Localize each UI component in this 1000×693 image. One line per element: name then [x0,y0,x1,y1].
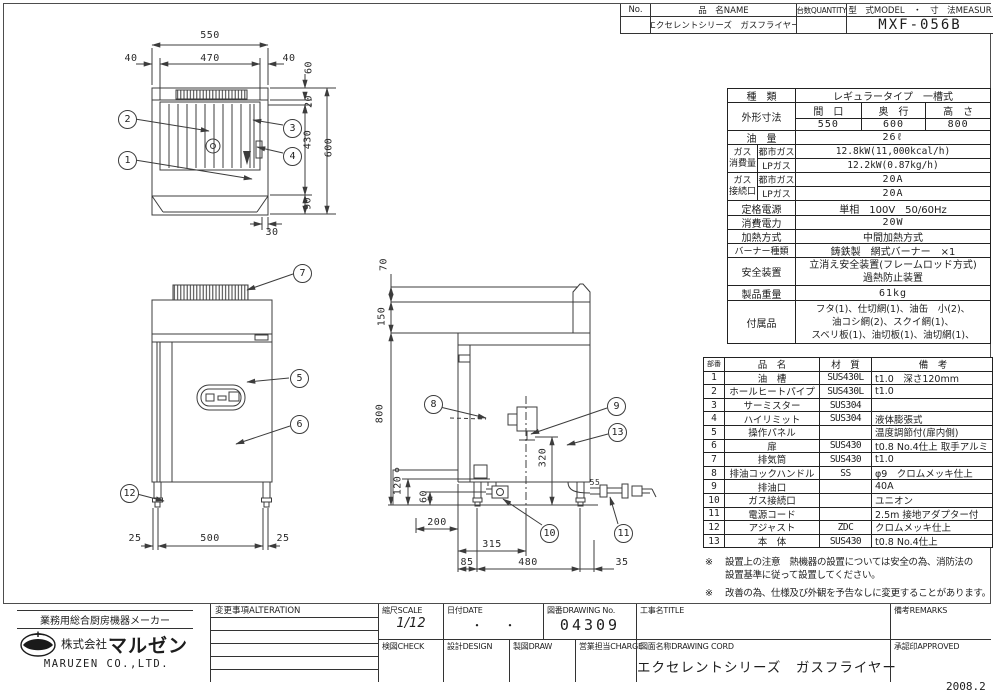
spec-label: 外形寸法 [728,103,796,130]
balloon-13: 13 [608,423,627,442]
check-label: 検図CHECK [382,641,424,652]
balloon-10: 10 [540,524,559,543]
conn-values: 20A 20A [796,173,990,200]
parts-cell: クロムメッキ仕上 [871,520,992,534]
city-gas-label: 都市ガス [758,173,795,187]
engineering-drawing-sheet: { "page": { "date_code": "2008.2" }, "he… [0,0,1000,692]
dim-label: 25 [126,533,144,544]
parts-table: 部番 品 名 材 質 備 考 1油 槽SUS430Lt1.0 深さ120mm2ホ… [703,357,993,548]
alteration-row-line [211,643,378,644]
approved-cell: 承認印APPROVED [890,640,991,682]
name-header: 品 名NAME [651,4,797,17]
parts-cell: 電源コード [724,507,819,521]
depth-label: 奥 行 [861,103,926,119]
charge-cell: 営業担当CHARGE [575,640,636,682]
spec-value: 20W [796,216,990,229]
parts-cell: アジャスト [724,520,819,534]
gas-values: 12.8kW(11,000kcal/h) 12.2kW(0.87kg/h) [796,145,990,172]
balloon-5: 5 [290,369,309,388]
dim-label: 85 [457,557,477,568]
lp-gas-label: LPガス [758,187,795,200]
balloon-7: 7 [293,264,312,283]
parts-cell: t1.0 [871,384,992,398]
dim-label: 800 [375,402,386,426]
scale-cell: 縮尺SCALE 1/12 [378,604,443,640]
spec-label: バーナー種類 [728,244,796,257]
alteration-cell: 変更事項ALTERATION [210,604,378,682]
parts-cell: 温度調節付(扉内側) [871,425,992,439]
dim-label: 55 [587,478,603,487]
drawing-name-cell: 図面名称DRAWING CORD エクセレントシリーズ ガスフライヤー [636,640,890,682]
spec-value: 中間加熱方式 [796,230,990,243]
dim-label: 470 [196,53,224,64]
dim-label: 320 [538,446,549,470]
no-header: No. [621,4,651,17]
lp-gas-value: 12.2kW(0.87kg/h) [796,159,990,172]
spec-label: 定格電源 [728,201,796,215]
spec-value: 鋳鉄製 網式バーナー ×1 [796,244,990,257]
balloon-9: 9 [607,397,626,416]
dim-label: 120 [393,474,404,498]
dim-label: 40 [122,53,140,64]
balloon-6: 6 [290,415,309,434]
parts-cell: t1.0 [871,452,992,466]
scale-label: 縮尺SCALE [382,605,422,616]
balloon-8: 8 [424,395,443,414]
note-mark: ※ [705,587,725,600]
conn-city-value: 20A [796,173,990,187]
note-1-line2: 設置基準に従って設置してください。 [725,569,995,582]
revision-date: 2008.2 [946,680,986,693]
outer-dim-grid: 間 口 奥 行 高 さ 550 600 800 [796,103,990,130]
safety-line2: 過熱防止装置 [863,272,923,285]
spec-label: 種 類 [728,89,796,102]
parts-cell: 2.5m 接地アダプター付 [871,507,992,521]
spec-row-weight: 製品重量 61kg [728,286,990,301]
parts-cell: 1 [704,371,724,385]
balloon-3: 3 [283,119,302,138]
parts-header-material: 材 質 [819,358,871,371]
no-value [621,17,651,33]
parts-cell: 12 [704,520,724,534]
dim-label: 500 [196,533,224,544]
draw-label: 製図DRAW [513,641,552,652]
draw-cell: 製図DRAW [509,640,575,682]
remarks-cell: 備考REMARKS [890,604,991,640]
balloon-4: 4 [283,147,302,166]
parts-cell: ハイリミット [724,411,819,425]
spec-row-heating: 加熱方式 中間加熱方式 [728,230,990,244]
parts-cell: 8 [704,466,724,480]
parts-cell: サーミスター [724,398,819,412]
spec-row-burner: バーナー種類 鋳鉄製 網式バーナー ×1 [728,244,990,258]
spec-row-kind: 種 類 レギュラータイプ 一槽式 [728,89,990,103]
check-cell: 検図CHECK [378,640,443,682]
lp-gas-label: LPガス [758,159,795,172]
accessories-line1: フタ(1)、仕切網(1)、油缶 小(2)、 [816,303,970,316]
drawing-no-label: 図番DRAWING No. [547,605,615,616]
parts-header-name: 品 名 [724,358,819,371]
parts-cell: 液体膨張式 [871,411,992,425]
note-1: ※ 設置上の注意 熱機器の設置については安全の為、消防法の [705,556,995,569]
parts-cell: φ9 クロムメッキ仕上 [871,466,992,480]
product-name: エクセレントシリーズ ガスフライヤー [651,17,797,33]
spec-label: 安全装置 [728,258,796,285]
parts-cell: SUS430 [819,534,871,548]
company-logotype: マルゼン [108,631,188,658]
spec-value: フタ(1)、仕切網(1)、油缶 小(2)、 油コシ網(2)、スクイ網(1)、 ス… [796,301,990,343]
title-cell: 工事名TITLE [636,604,890,640]
parts-cell: 13 [704,534,724,548]
spec-label: 製品重量 [728,286,796,300]
company-name-en: MARUZEN CO.,LTD. [3,658,210,670]
drawing-name-value: エクセレントシリーズ ガスフライヤー [637,656,890,676]
dim-label: 20 [304,90,315,114]
drawing-name-label: 図面名称DRAWING CORD [640,641,734,652]
dim-label: 60 [304,56,315,80]
parts-cell: 10 [704,493,724,507]
width-value: 550 [796,119,861,130]
accessories-line2: 油コシ網(2)、スクイ網(1)、 [832,316,954,329]
spec-table: 種 類 レギュラータイプ 一槽式 外形寸法 間 口 奥 行 高 さ 550 60… [727,88,991,344]
note-2-text: 改善の為、仕様及び外観を予告なしに変更することがあります。 [725,587,991,600]
parts-cell: ZDC [819,520,871,534]
drawing-no-cell: 図番DRAWING No. 04309 [543,604,636,640]
parts-cell: t0.8 No.4仕上 取手アルミ [871,439,992,453]
spec-value: 26ℓ [796,131,990,144]
model-number: MXF-056B [847,17,993,33]
gas-type-column: 都市ガス LPガス [758,145,796,172]
dim-label: 315 [478,539,506,550]
maruzen-logo-icon [19,630,57,658]
width-label: 間 口 [796,103,861,119]
company-logo-row: 株式会社 マルゼン [19,630,188,658]
spec-row-outer-dim: 外形寸法 間 口 奥 行 高 さ 550 600 800 [728,103,990,131]
conn-lp-value: 20A [796,187,990,200]
spec-label: 油 量 [728,131,796,144]
spec-row-gas-connection: ガス 接続口 都市ガス LPガス 20A 20A [728,173,990,201]
parts-cell: ユニオン [871,493,992,507]
drawing-no-value: 04309 [544,616,636,634]
charge-label: 営業担当CHARGE [579,641,643,652]
company-block: 業務用総合厨房機器メーカー 株式会社 マルゼン MARUZEN CO.,LTD. [3,604,210,682]
spec-row-oil: 油 量 26ℓ [728,131,990,145]
parts-cell: 本 体 [724,534,819,548]
date-label: 日付DATE [447,605,483,616]
height-value: 800 [925,119,990,130]
spec-row-safety: 安全装置 立消え安全装置(フレームロッド方式) 過熱防止装置 [728,258,990,286]
height-label: 高 さ [925,103,990,119]
spec-row-accessories: 付属品 フタ(1)、仕切網(1)、油缶 小(2)、 油コシ網(2)、スクイ網(1… [728,301,990,343]
dim-label: 90 [303,192,314,216]
remarks-label: 備考REMARKS [894,605,947,616]
dim-label: 70 [379,253,390,277]
spec-label: 消費電力 [728,216,796,229]
depth-value: 600 [861,119,926,130]
city-gas-value: 12.8kW(11,000kcal/h) [796,145,990,159]
alteration-row-line [211,656,378,657]
company-slogan: 業務用総合厨房機器メーカー [17,610,193,629]
balloon-12: 12 [120,484,139,503]
spec-row-gas-consumption: ガス 消費量 都市ガス LPガス 12.8kW(11,000kcal/h) 12… [728,145,990,173]
dim-label: 550 [196,30,224,41]
parts-cell: 操作パネル [724,425,819,439]
parts-cell: 9 [704,479,724,493]
spec-value: 単相 100V 50/60Hz [796,201,990,215]
design-cell: 設計DESIGN [443,640,509,682]
parts-cell [819,507,871,521]
parts-cell: SUS430 [819,452,871,466]
spec-row-power: 定格電源 単相 100V 50/60Hz [728,201,990,216]
parts-cell: 11 [704,507,724,521]
alteration-row-line [211,617,378,618]
approved-label: 承認印APPROVED [894,641,959,652]
parts-cell: ホールヒートパイプ [724,384,819,398]
quantity-value [797,17,847,33]
alteration-label: 変更事項ALTERATION [215,604,300,616]
parts-cell: SUS430L [819,371,871,385]
quantity-header: 台数QUANTITY [797,4,847,17]
parts-cell: t0.8 No.4仕上 [871,534,992,548]
scale-value: 1/12 [379,616,443,631]
title-block: 業務用総合厨房機器メーカー 株式会社 マルゼン MARUZEN CO.,LTD.… [3,603,991,681]
parts-cell [871,398,992,412]
parts-cell: 4 [704,411,724,425]
title-label: 工事名TITLE [640,605,684,616]
parts-cell [819,425,871,439]
alteration-row-line [211,669,378,670]
dim-label: 430 [303,128,314,152]
parts-cell: 40A [871,479,992,493]
note-2: ※ 改善の為、仕様及び外観を予告なしに変更することがあります。 [705,587,995,600]
parts-header-no: 部番 [704,358,724,371]
dim-label: 600 [324,136,335,160]
safety-line1: 立消え安全装置(フレームロッド方式) [809,259,977,272]
spec-label: 加熱方式 [728,230,796,243]
parts-cell: SUS304 [819,398,871,412]
parts-cell: ガス接続口 [724,493,819,507]
parts-cell: 5 [704,425,724,439]
spec-label: ガス 接続口 [728,173,758,200]
spec-value: レギュラータイプ 一槽式 [796,89,990,102]
balloon-1: 1 [118,151,137,170]
parts-cell: 排油コックハンドル [724,466,819,480]
spec-value: 立消え安全装置(フレームロッド方式) 過熱防止装置 [796,258,990,285]
spec-label: 付属品 [728,301,796,343]
note-1-line1: 設置上の注意 熱機器の設置については安全の為、消防法の [725,556,973,569]
title-header-table: No. 品 名NAME 台数QUANTITY 型 式MODEL ・ 寸 法MEA… [620,4,993,34]
balloon-2: 2 [118,110,137,129]
spec-value: 61kg [796,286,990,300]
parts-cell: SUS430L [819,384,871,398]
parts-cell: 油 槽 [724,371,819,385]
parts-cell: SS [819,466,871,480]
parts-cell: 3 [704,398,724,412]
notes: ※ 設置上の注意 熱機器の設置については安全の為、消防法の 設置基準に従って設置… [705,556,995,600]
parts-cell: 排気筒 [724,452,819,466]
accessories-line3: スベリ板(1)、油切板(1)、油切網(1)、 [811,329,974,342]
spec-label: ガス 消費量 [728,145,758,172]
parts-cell: 排油口 [724,479,819,493]
date-cell: 日付DATE ・ ・ [443,604,543,640]
alteration-row-line [211,630,378,631]
dim-label: 35 [612,557,632,568]
dim-label: 40 [280,53,298,64]
dim-label: 150 [377,305,388,329]
company-prefix: 株式会社 [61,636,107,652]
dim-label: 480 [514,557,542,568]
parts-cell: 扉 [724,439,819,453]
parts-cell [819,479,871,493]
dim-label: 60 [419,485,430,509]
dim-label: 30 [262,227,282,238]
date-value: ・ ・ [444,617,543,633]
dim-label: 25 [274,533,292,544]
parts-cell: 2 [704,384,724,398]
parts-cell: 7 [704,452,724,466]
model-header: 型 式MODEL ・ 寸 法MEASUR [847,4,993,17]
parts-cell: SUS430 [819,439,871,453]
parts-cell: t1.0 深さ120mm [871,371,992,385]
design-label: 設計DESIGN [447,641,492,652]
parts-header-remarks: 備 考 [871,358,992,371]
parts-cell: 6 [704,439,724,453]
spec-row-wattage: 消費電力 20W [728,216,990,230]
dim-label: 200 [423,517,451,528]
note-mark: ※ [705,556,725,569]
gas-type-column: 都市ガス LPガス [758,173,796,200]
parts-cell: SUS304 [819,411,871,425]
parts-cell [819,493,871,507]
city-gas-label: 都市ガス [758,145,795,159]
balloon-11: 11 [614,524,633,543]
